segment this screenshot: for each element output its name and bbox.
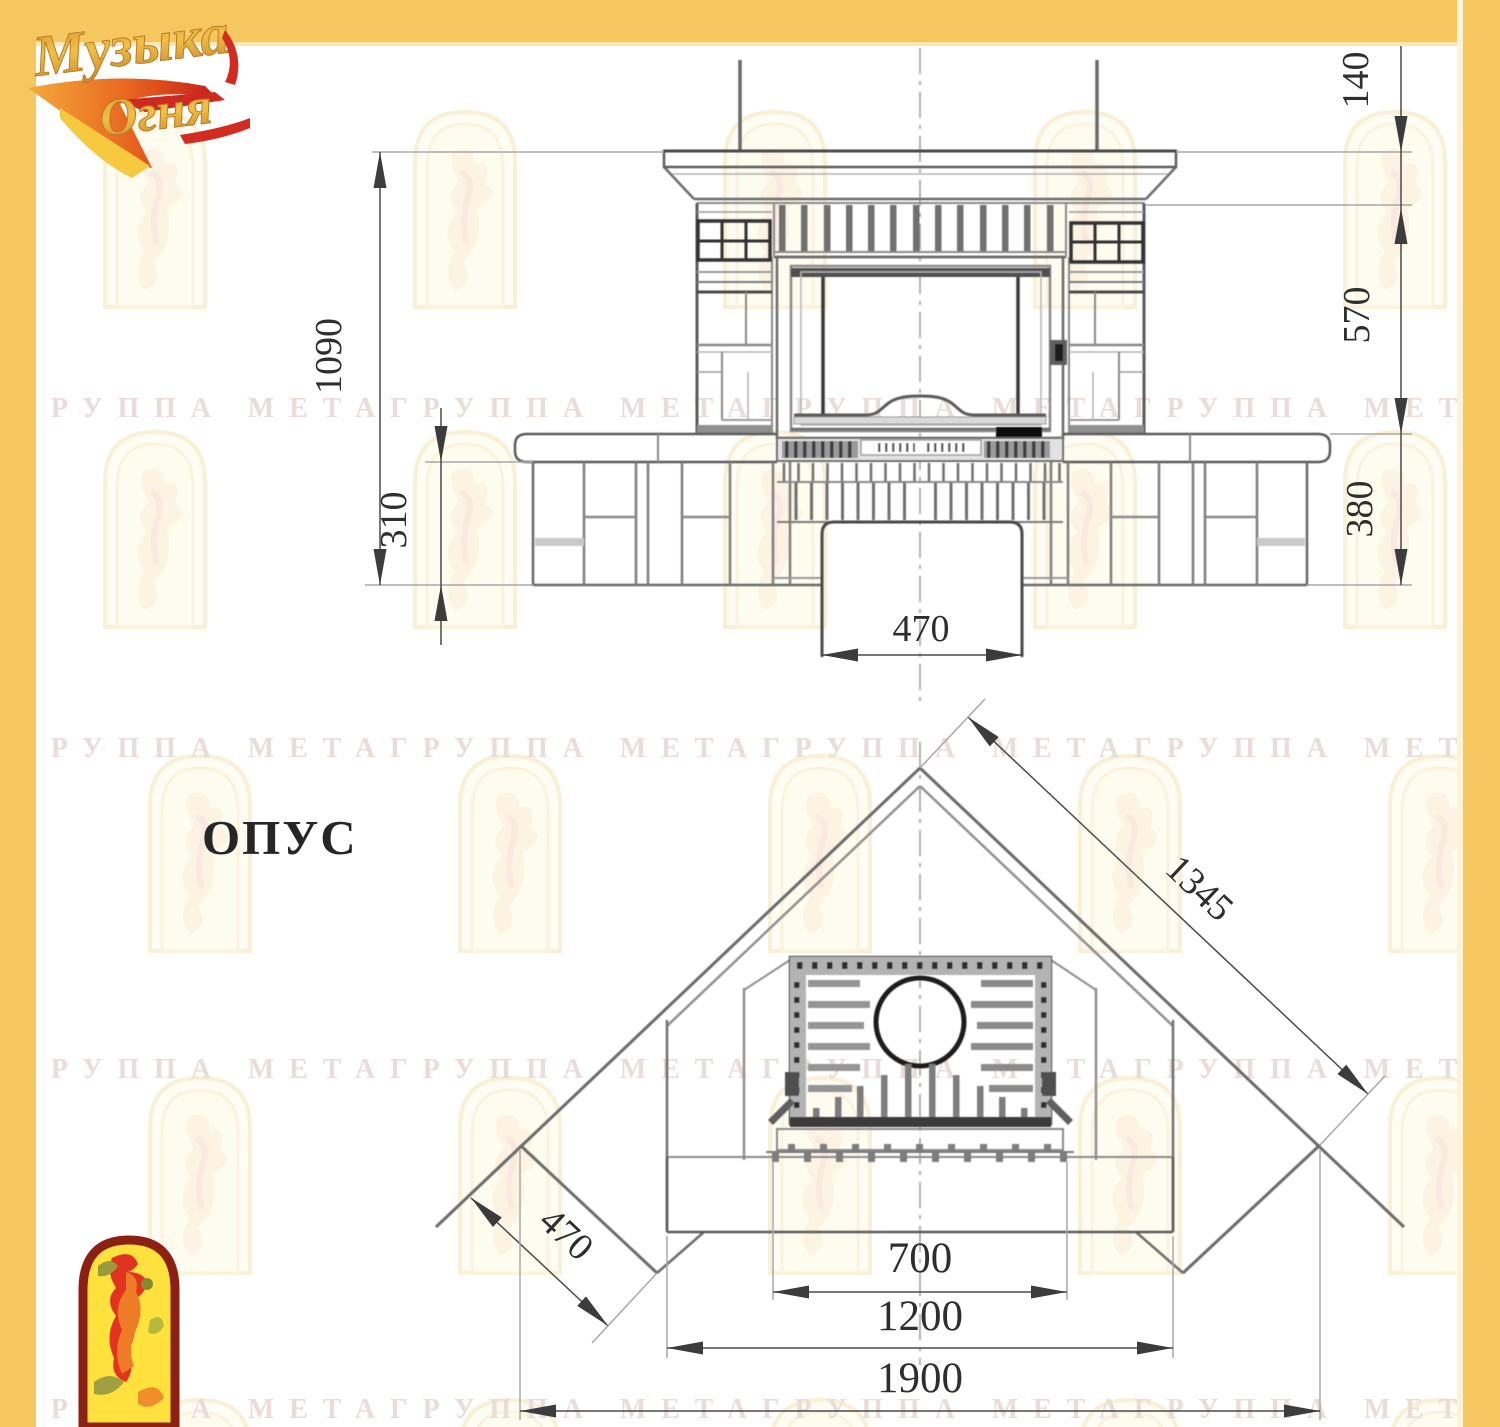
svg-text:380: 380: [1339, 481, 1381, 538]
svg-text:1200: 1200: [877, 1293, 963, 1340]
svg-text:140: 140: [1335, 52, 1377, 109]
svg-text:470: 470: [893, 608, 950, 650]
svg-text:ОПУС: ОПУС: [202, 810, 358, 865]
svg-text:1900: 1900: [877, 1355, 963, 1402]
svg-text:700: 700: [888, 1235, 953, 1282]
svg-text:310: 310: [373, 492, 415, 549]
svg-text:1090: 1090: [308, 318, 350, 394]
svg-text:570: 570: [1336, 287, 1378, 344]
